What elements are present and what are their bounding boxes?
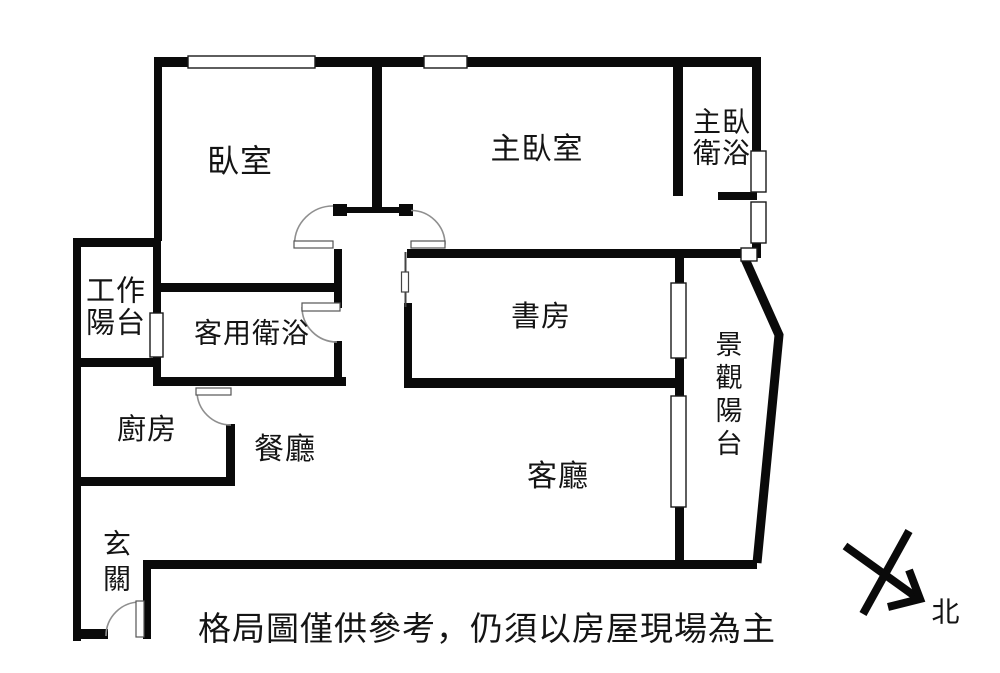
- floor-plan-drawing: [0, 0, 1000, 673]
- wall-corridor: [334, 249, 342, 308]
- wall-workbalcony-top: [73, 238, 157, 247]
- wall-bedroom-left: [154, 57, 162, 241]
- door-leaf-master: [411, 241, 445, 248]
- wall-workbalcony-bottom: [76, 358, 157, 367]
- door-arc-master: [411, 211, 445, 245]
- wall-study-bottom: [404, 378, 684, 388]
- compass-north-label: 北: [931, 597, 960, 628]
- wall-balcony-divider-mid: [675, 357, 684, 396]
- room-label-guest-bathroom: 客用衛浴: [194, 318, 310, 349]
- wall-balcony-angled: [745, 259, 779, 563]
- wall-entry-bottom: [73, 629, 108, 639]
- wall-master-bottom: [407, 249, 761, 258]
- door-leaf-kitchen: [196, 388, 231, 395]
- door-leaf-guestbath: [302, 303, 340, 311]
- window-study-balcony: [671, 283, 686, 358]
- door-slide-panel-study: [402, 272, 409, 292]
- window-masterbath-lower: [751, 202, 766, 243]
- door-leaf-entry: [136, 601, 144, 637]
- wall-kitchen-bottom: [76, 477, 235, 486]
- room-label-kitchen: 廚房: [117, 414, 177, 446]
- wall-hallway-jamb-right: [399, 204, 413, 216]
- wall-hallway: [346, 207, 400, 213]
- room-label-study: 書房: [511, 301, 571, 333]
- door-arc-kitchen: [197, 392, 231, 426]
- wall-bedroom-bottom: [157, 283, 337, 292]
- wall-masterbath-left: [673, 58, 683, 196]
- room-label-entry: 玄關: [100, 529, 128, 599]
- wall-bedroom-master-divider: [372, 58, 382, 208]
- window-masterbath-upper: [751, 151, 766, 192]
- compass: [845, 531, 920, 614]
- wall-guestbath-right-lower: [334, 341, 342, 386]
- wall-bottom: [143, 560, 757, 569]
- room-label-master-bedroom: 主臥室: [491, 133, 584, 167]
- window-balcony-corner: [741, 248, 757, 261]
- wall-guestbath-bottom: [154, 377, 346, 386]
- room-label-work-balcony: 工作 陽台: [86, 276, 146, 341]
- window-bedroom-top: [188, 56, 315, 68]
- room-label-living: 客廳: [527, 460, 589, 494]
- room-label-dining: 餐廳: [254, 433, 316, 467]
- disclaimer-text: 格局圖僅供參考，仍須以房屋現場為主: [198, 602, 776, 650]
- door-arc-bedroom: [295, 206, 334, 244]
- wall-balcony-divider-upper: [675, 249, 684, 285]
- wall-balcony-divider-lower: [675, 506, 684, 568]
- floor-plan: 臥室 主臥室 主臥 衛浴 工作 陽台 客用衛浴 書房 廚房 餐廳 客廳 景觀陽台…: [0, 0, 1000, 673]
- wall-kitchen-right: [226, 424, 235, 486]
- wall-outer-left: [73, 238, 81, 641]
- room-label-bedroom: 臥室: [207, 144, 273, 180]
- door-leaf-bedroom: [294, 241, 333, 248]
- window-living-balcony: [671, 396, 686, 507]
- window-master-top: [424, 56, 467, 68]
- wall-study-left: [404, 303, 412, 386]
- window-workbalcony: [150, 313, 163, 357]
- room-label-master-bathroom: 主臥 衛浴: [693, 108, 751, 171]
- wall-masterbath-stub: [718, 192, 757, 200]
- wall-outer-right-upper: [752, 57, 761, 152]
- room-label-view-balcony: 景觀陽台: [713, 330, 740, 462]
- wall-hallway-jamb-left: [333, 204, 347, 216]
- door-arc-entry: [106, 602, 140, 636]
- walls: [73, 57, 761, 641]
